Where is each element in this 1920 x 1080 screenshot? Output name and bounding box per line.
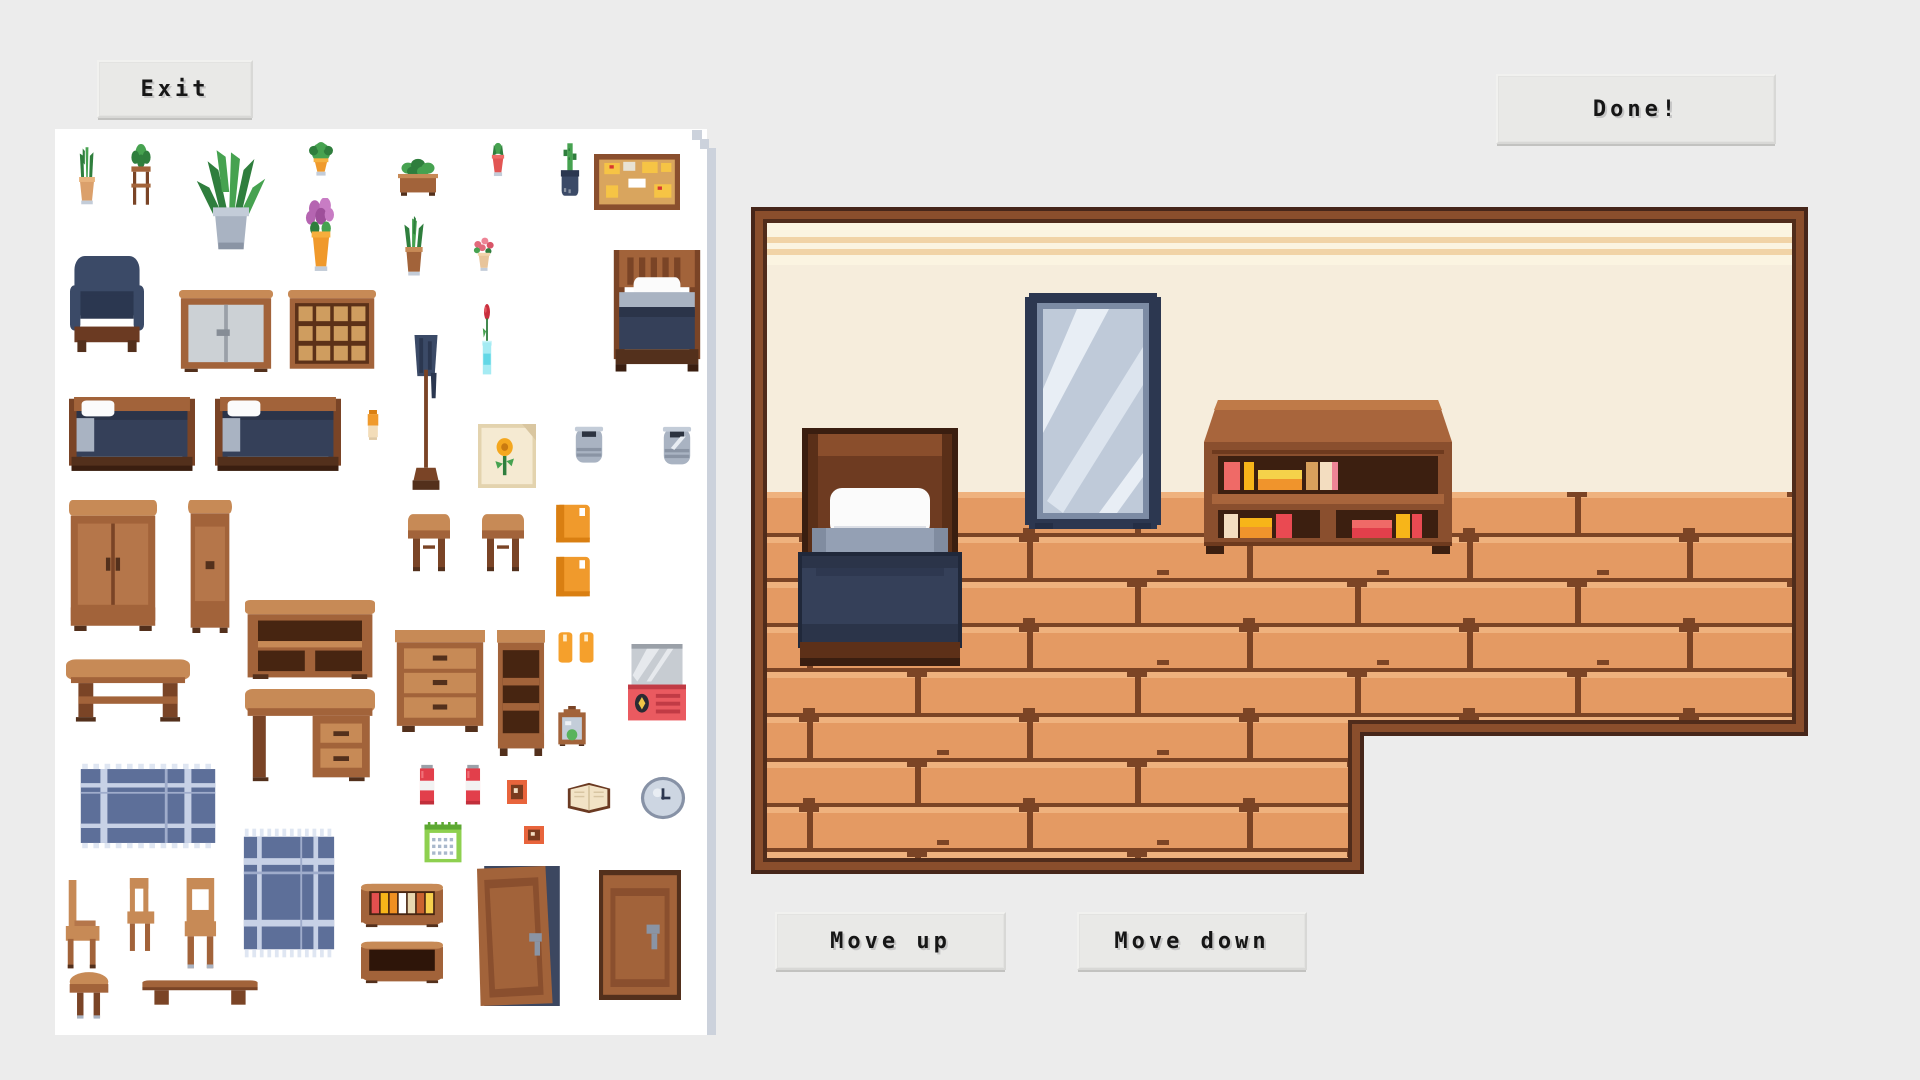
catalog-item-small-picture-2[interactable] bbox=[524, 826, 544, 844]
catalog-item-stone-pot[interactable] bbox=[567, 424, 611, 470]
catalog-item-empty-shelf[interactable] bbox=[361, 940, 443, 984]
wall-stripe bbox=[767, 237, 1792, 243]
catalog-item-rose-in-vase[interactable] bbox=[472, 304, 502, 384]
catalog-item-plaid-rug[interactable] bbox=[78, 762, 218, 850]
placed-standing-mirror[interactable] bbox=[1025, 293, 1161, 529]
catalog-item-coat-rack[interactable] bbox=[402, 335, 450, 493]
catalog-item-low-bench[interactable] bbox=[140, 972, 260, 1010]
catalog-item-console-shelf[interactable] bbox=[245, 600, 375, 679]
room-preview[interactable] bbox=[751, 207, 1808, 874]
catalog-item-wooden-chair-3[interactable] bbox=[182, 878, 228, 972]
screen: Exit Done! Move up Move down bbox=[0, 0, 1920, 1080]
catalog-item-single-bed[interactable] bbox=[612, 250, 702, 374]
catalog-item-soda-can[interactable] bbox=[416, 764, 438, 808]
catalog-item-open-book[interactable] bbox=[566, 780, 612, 816]
catalog-item-sunflower-painting[interactable] bbox=[478, 424, 536, 488]
catalog-item-end-table[interactable] bbox=[404, 510, 454, 578]
catalog-item-tall-cabinet[interactable] bbox=[188, 500, 232, 633]
catalog-item-wardrobe[interactable] bbox=[69, 500, 157, 631]
catalog-item-wall-clock[interactable] bbox=[640, 776, 686, 820]
catalog-item-bookcase[interactable] bbox=[497, 630, 545, 756]
catalog-item-round-stool[interactable] bbox=[66, 970, 112, 1024]
catalog-item-tv-set[interactable] bbox=[628, 644, 686, 722]
catalog-item-white-cabinet[interactable] bbox=[179, 290, 273, 372]
catalog-item-planter-box[interactable] bbox=[393, 158, 443, 200]
catalog-item-open-door[interactable] bbox=[477, 866, 567, 1006]
catalog-item-armchair[interactable] bbox=[70, 256, 144, 354]
catalog-item-pink-flowers[interactable] bbox=[462, 236, 506, 278]
catalog-item-soda-can-2[interactable] bbox=[462, 764, 484, 808]
catalog-item-blue-rug[interactable] bbox=[242, 826, 336, 960]
catalog-item-corkboard[interactable] bbox=[594, 154, 680, 210]
catalog-item-dresser[interactable] bbox=[395, 630, 485, 732]
catalog-item-snake-plant[interactable] bbox=[69, 146, 105, 208]
catalog-item-stone-pot-2[interactable] bbox=[655, 424, 699, 472]
catalog-item-calendar[interactable] bbox=[422, 822, 464, 864]
catalog-item-display-cabinet[interactable] bbox=[288, 290, 376, 372]
catalog-item-double-bed-2[interactable] bbox=[215, 397, 341, 485]
catalog-item-book-shelf-small[interactable] bbox=[361, 882, 443, 928]
catalog-item-end-table-2[interactable] bbox=[478, 510, 528, 578]
catalog-item-closed-door[interactable] bbox=[599, 870, 681, 1000]
catalog-item-orange-book-2[interactable] bbox=[553, 556, 593, 598]
catalog-item-terrarium[interactable] bbox=[553, 706, 591, 746]
catalog-item-orange-book[interactable] bbox=[553, 504, 593, 544]
catalog-item-large-palm[interactable] bbox=[186, 148, 276, 258]
catalog-item-red-potted-plant[interactable] bbox=[481, 142, 515, 188]
placed-single-bed[interactable] bbox=[798, 428, 962, 666]
catalog-item-small-picture[interactable] bbox=[507, 780, 527, 804]
catalog-item-coffee-table[interactable] bbox=[66, 652, 190, 726]
catalog-item-plant-on-stand[interactable] bbox=[121, 144, 161, 210]
catalog-item-green-plant[interactable] bbox=[390, 216, 438, 278]
wall-band bbox=[767, 223, 1792, 265]
catalog-item-wooden-chair-2[interactable] bbox=[124, 878, 166, 954]
catalog-item-double-bed[interactable] bbox=[69, 397, 195, 485]
catalog-item-desk[interactable] bbox=[245, 689, 375, 785]
catalog-item-wooden-chair[interactable] bbox=[62, 880, 110, 972]
catalog-item-purple-flowers[interactable] bbox=[295, 198, 347, 274]
catalog-item-cactus-dark-pot[interactable] bbox=[551, 142, 589, 206]
catalog-item-small-jar[interactable] bbox=[362, 410, 384, 444]
wall-stripe bbox=[767, 249, 1792, 255]
catalog-item-candle-pair[interactable] bbox=[553, 630, 599, 668]
catalog-item-potted-fern[interactable] bbox=[298, 142, 344, 190]
placed-bookshelf[interactable] bbox=[1204, 400, 1452, 554]
